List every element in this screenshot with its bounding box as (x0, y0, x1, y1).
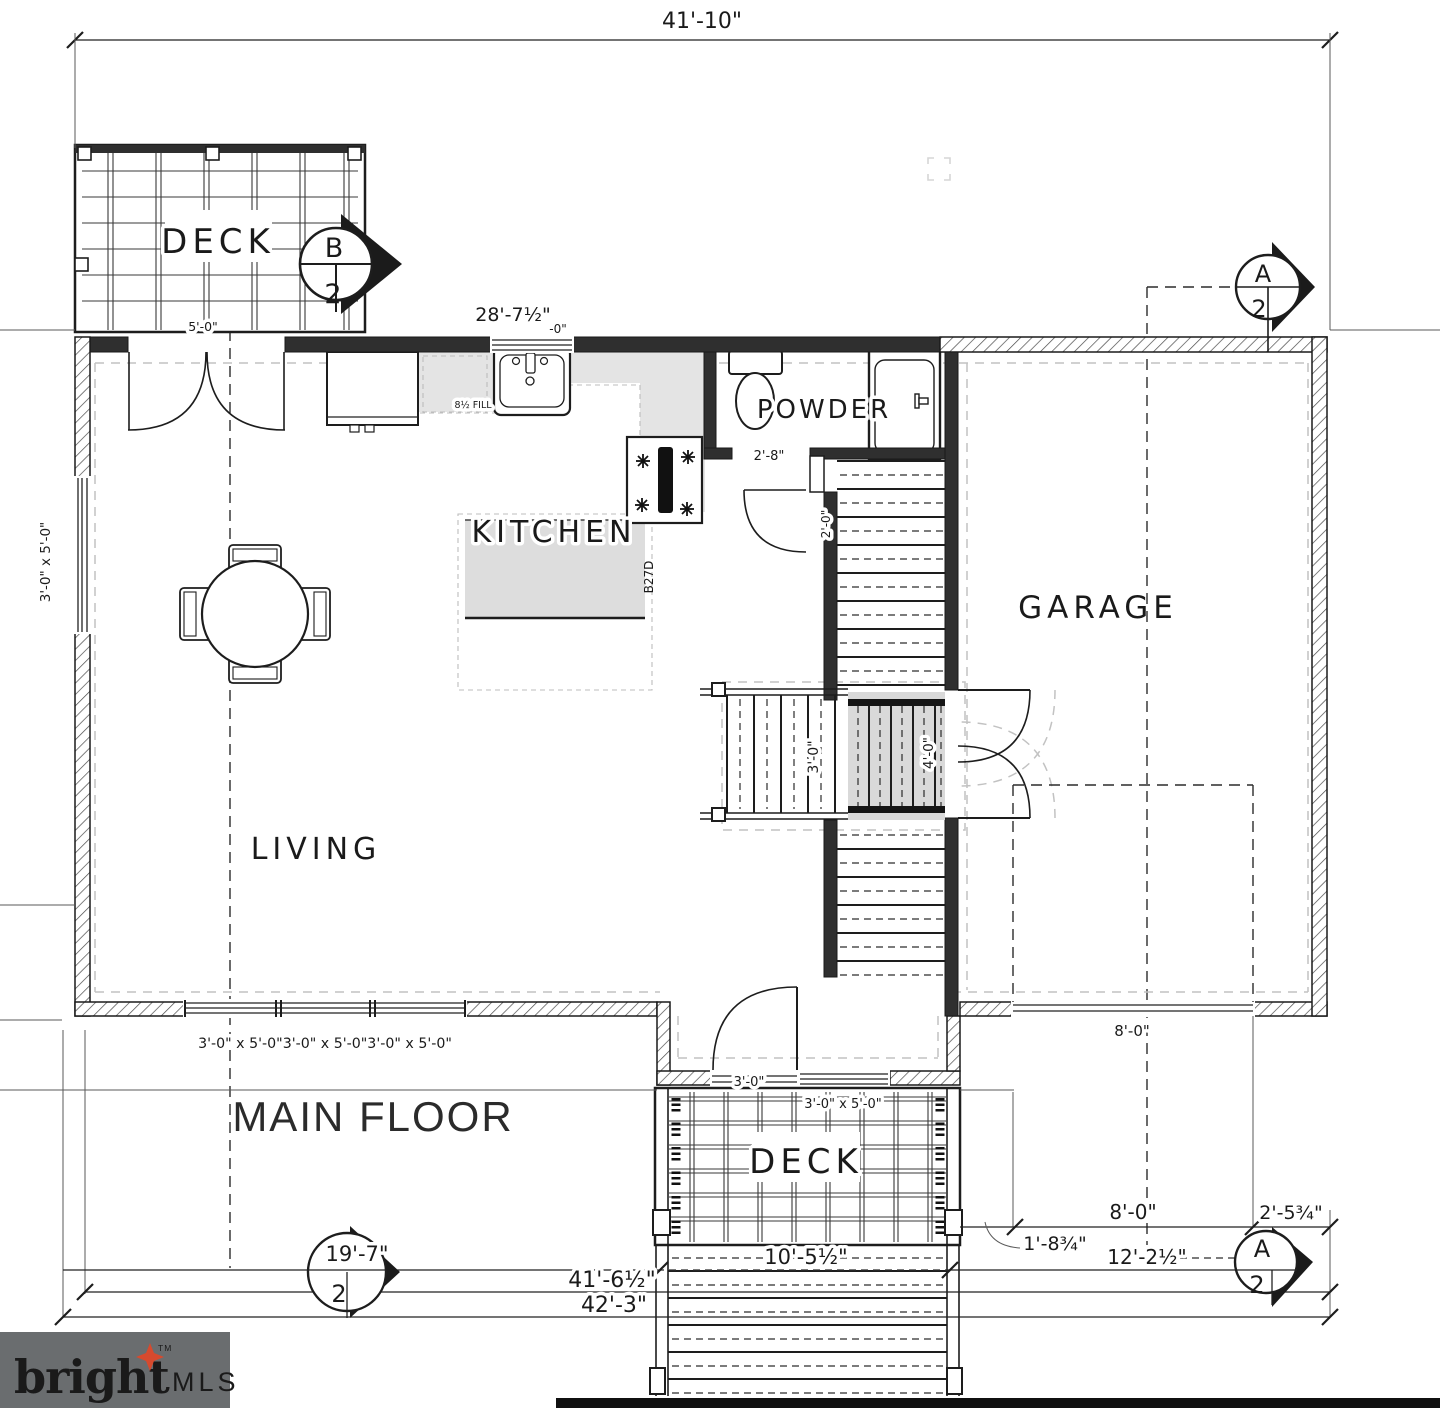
dim-kitchen-run-suffix: -0" (549, 322, 566, 336)
table-round (202, 561, 308, 667)
dim-garage-door-line: 8'-0" (1109, 1200, 1156, 1224)
garage-door-sill (1011, 1001, 1255, 1017)
dim-span-41: 41'-6½" (568, 1268, 655, 1293)
marker-b-top-number: 2 (324, 279, 341, 310)
dim-entry-window: 3'-0" x 5'-0" (804, 1097, 882, 1112)
brightmls-logo: bright TM MLS (0, 1332, 240, 1408)
window-bottom-triple (183, 999, 467, 1018)
stair-door-leaf (810, 456, 824, 492)
dim-left-span: 19'-7" (325, 1242, 388, 1266)
floor-plan-page: 41'-10" DECK B 2 A 2 5'-0" 28'-7½" -0" 3… (0, 0, 1440, 1408)
floor-plan-drawing: 41'-10" DECK B 2 A 2 5'-0" 28'-7½" -0" 3… (0, 0, 1440, 1408)
marker-a-bottom-number: 2 (1249, 1271, 1264, 1299)
page-title: MAIN FLOOR (232, 1093, 513, 1140)
bottom-rule (556, 1398, 1440, 1408)
marker-a-bottom-letter: A (1254, 1235, 1271, 1263)
room-label-deck-top: DECK (161, 222, 275, 262)
dim-kitchen-run: 28'-7½" (475, 304, 551, 326)
room-label-powder: POWDER (757, 395, 891, 425)
marker-a-top-number: 2 (1251, 295, 1266, 323)
dim-garage-width: 12'-2½" (1107, 1245, 1186, 1269)
logo-tm: TM (158, 1343, 172, 1353)
room-label-living: LIVING (251, 832, 382, 867)
marker-a-top-letter: A (1255, 260, 1272, 288)
room-label-deck-bottom: DECK (749, 1142, 863, 1182)
kitchen-range (627, 437, 702, 523)
logo-suffix: MLS (172, 1367, 240, 1397)
dim-span-42: 42'-3" (581, 1293, 647, 1318)
dim-stair-door: 2'-0" (819, 510, 833, 538)
dim-left-window: 3'-0" x 5'-0" (38, 522, 54, 603)
kitchen-cabinet (327, 352, 418, 432)
marker-b-top-letter: B (325, 233, 344, 264)
kitchen-sink (494, 347, 570, 415)
dim-stair-lower-width: 3'-0" (806, 740, 822, 773)
dim-powder-door: 2'-8" (754, 449, 785, 464)
dim-entry-door: 3'-0" (734, 1075, 765, 1090)
dim-deck-bottom-width: 10'-5½" (764, 1245, 847, 1269)
dim-deck-top-width: 5'-0" (188, 319, 218, 334)
room-label-kitchen: KITCHEN (472, 515, 637, 550)
dim-garage-door: 8'-0" (1114, 1022, 1150, 1040)
dim-overall-width: 41'-10" (662, 9, 742, 34)
note-filler: 8½ FILL (454, 400, 492, 411)
note-cabinet-code: B27D (642, 561, 656, 594)
window-left (74, 476, 91, 634)
dim-deck-offset: 1'-8¾" (1023, 1233, 1086, 1255)
marker-b-bottom-number: 2 (331, 1280, 346, 1308)
dim-right-offset: 2'-5¾" (1259, 1202, 1322, 1224)
window-entry (798, 1070, 890, 1086)
dim-bottom-windows: 3'-0" x 5'-0"3'-0" x 5'-0"3'-0" x 5'-0" (198, 1036, 452, 1052)
dim-stair-upper-width: 4'-0" (921, 737, 937, 769)
room-label-garage: GARAGE (1018, 590, 1178, 626)
window-over-sink (490, 336, 574, 353)
